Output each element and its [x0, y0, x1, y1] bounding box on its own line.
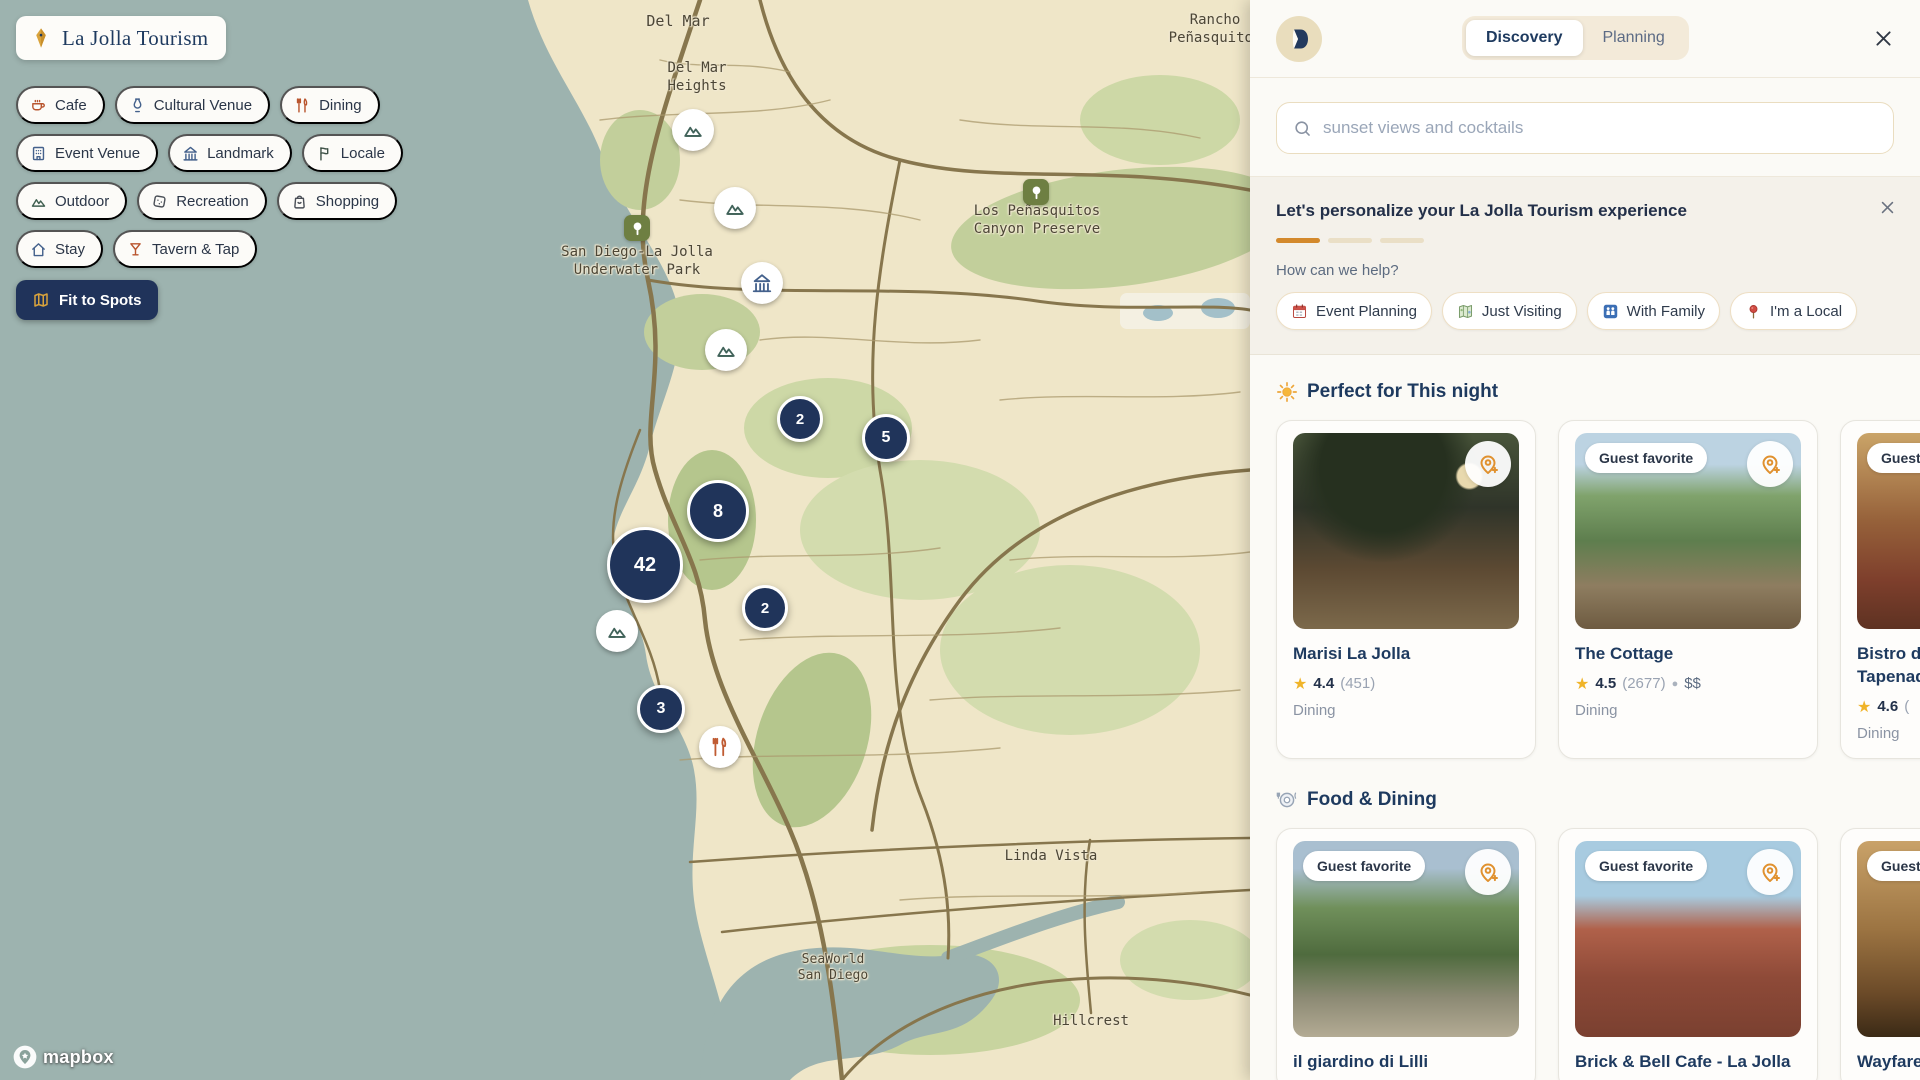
place-name: Bistro du Marché by Tapenade	[1857, 643, 1920, 689]
coffee-icon	[30, 97, 47, 114]
brand-avatar[interactable]	[1276, 16, 1322, 62]
chip-label: Cafe	[55, 97, 87, 114]
star-icon: ★	[1293, 674, 1307, 694]
section-header: Food & Dining	[1276, 789, 1920, 811]
map-cluster-marker[interactable]: 8	[687, 480, 749, 542]
review-count: (	[1904, 698, 1909, 715]
park-tree-marker	[1023, 179, 1049, 205]
building-icon	[30, 145, 47, 162]
chip-label: Stay	[55, 241, 85, 258]
review-count: (451)	[1340, 675, 1375, 692]
filter-chip-landmark[interactable]: Landmark	[168, 134, 292, 172]
rating-value: 4.5	[1595, 675, 1616, 692]
personalize-option-event-planning[interactable]: Event Planning	[1276, 292, 1432, 330]
card-row: Marisi La Jolla★4.4(451)DiningGuest favo…	[1276, 420, 1920, 759]
star-icon: ★	[1857, 697, 1871, 717]
dice-icon	[151, 193, 168, 210]
map-place-label: SeaWorld San Diego	[798, 952, 868, 985]
place-card[interactable]: Guest favoriteWayfarer	[1840, 828, 1920, 1080]
personalize-question: How can we help?	[1276, 262, 1894, 279]
personalize-close-button[interactable]	[1879, 199, 1896, 216]
personalize-banner: Let's personalize your La Jolla Tourism …	[1250, 177, 1920, 355]
place-photo: Guest favorite	[1575, 433, 1801, 629]
mountain-icon	[682, 119, 704, 141]
mapbox-wordmark: mapbox	[43, 1047, 114, 1068]
section-title: Perfect for This night	[1307, 381, 1498, 403]
place-photo: Guest favorite	[1575, 841, 1801, 1037]
review-count: (2677)	[1622, 675, 1665, 692]
museum-icon	[751, 272, 773, 294]
sidebar-tab-group: Discovery Planning	[1462, 16, 1689, 60]
map-place-label: Linda Vista	[1005, 848, 1098, 866]
map-poi-marker[interactable]	[699, 726, 741, 768]
worldmap-emoji-icon	[1457, 303, 1474, 320]
content-section: Food & DiningGuest favoriteil giardino d…	[1276, 789, 1920, 1080]
park-tree-marker	[624, 215, 650, 241]
price-level: $$	[1684, 675, 1701, 692]
personalize-option-just-visiting[interactable]: Just Visiting	[1442, 292, 1577, 330]
filter-chip-stay[interactable]: Stay	[16, 230, 103, 268]
brand-d-icon	[1287, 27, 1311, 51]
place-name: il giardino di Lilli	[1293, 1051, 1519, 1074]
sidebar-content: Perfect for This nightMarisi La Jolla★4.…	[1250, 355, 1920, 1080]
search-box	[1276, 102, 1894, 154]
filter-chip-outdoor[interactable]: Outdoor	[16, 182, 127, 220]
vase-icon	[129, 97, 146, 114]
kite-icon	[30, 27, 52, 49]
home-icon	[30, 241, 47, 258]
add-to-trip-button[interactable]	[1465, 849, 1511, 895]
flag-icon	[316, 145, 333, 162]
cluster-count: 5	[882, 429, 891, 447]
bag-icon	[291, 193, 308, 210]
landmark-icon	[182, 145, 199, 162]
star-icon: ★	[1575, 674, 1589, 694]
place-card[interactable]: Guest favoriteBistro du Marché by Tapena…	[1840, 420, 1920, 759]
map-poi-marker[interactable]	[714, 187, 756, 229]
rating-value: 4.4	[1313, 675, 1334, 692]
calendar-emoji-icon	[1291, 303, 1308, 320]
chip-label: Recreation	[176, 193, 249, 210]
cluster-count: 2	[761, 600, 769, 617]
progress-segment-empty	[1328, 238, 1372, 243]
close-icon	[1873, 28, 1894, 49]
cluster-count: 42	[634, 554, 656, 577]
option-label: With Family	[1627, 303, 1705, 320]
map-place-label: Hillcrest	[1053, 1013, 1129, 1031]
mountain-icon	[724, 197, 746, 219]
place-card[interactable]: Guest favoriteBrick & Bell Cafe - La Jol…	[1558, 828, 1818, 1080]
mountain-icon	[606, 620, 628, 642]
chip-label: Cultural Venue	[154, 97, 252, 114]
sun-emoji-icon	[1276, 381, 1298, 403]
place-photo	[1293, 433, 1519, 629]
pin-plus-icon	[1476, 452, 1500, 476]
add-to-trip-button[interactable]	[1465, 441, 1511, 487]
family-emoji-icon	[1602, 303, 1619, 320]
option-label: I'm a Local	[1770, 303, 1842, 320]
place-name: The Cottage	[1575, 643, 1801, 666]
section-header: Perfect for This night	[1276, 381, 1920, 403]
search-section	[1250, 78, 1920, 177]
pin-plus-icon	[1758, 452, 1782, 476]
rating-value: 4.6	[1877, 698, 1898, 715]
map-cluster-marker[interactable]: 3	[637, 685, 685, 733]
chip-label: Dining	[319, 97, 362, 114]
personalize-option-i-m-a-local[interactable]: I'm a Local	[1730, 292, 1857, 330]
place-name: Wayfarer	[1857, 1051, 1920, 1074]
filter-chip-event-venue[interactable]: Event Venue	[16, 134, 158, 172]
place-card[interactable]: Guest favoriteThe Cottage★4.5(2677)●$$Di…	[1558, 420, 1818, 759]
map-poi-marker[interactable]	[672, 109, 714, 151]
map-place-label: San Diego-La Jolla Underwater Park	[561, 244, 713, 279]
rating-row: ★4.5(2677)●$$	[1575, 674, 1801, 694]
tree-icon	[1028, 184, 1045, 201]
guest-favorite-badge: Guest favorite	[1867, 851, 1920, 881]
close-icon	[1879, 199, 1896, 216]
map-poi-marker[interactable]	[596, 610, 638, 652]
filter-chip-cafe[interactable]: Cafe	[16, 86, 105, 124]
mountains-icon	[30, 193, 47, 210]
progress-segment-filled	[1276, 238, 1320, 243]
guest-favorite-badge: Guest favorite	[1867, 443, 1920, 473]
cluster-count: 3	[657, 700, 666, 718]
tree-icon	[629, 220, 646, 237]
guest-favorite-badge: Guest favorite	[1585, 851, 1707, 881]
separator-dot: ●	[1672, 678, 1679, 690]
rating-row: ★4.4(451)	[1293, 674, 1519, 694]
plate-emoji-icon	[1276, 789, 1298, 811]
personalize-options: Event PlanningJust VisitingWith FamilyI'…	[1276, 292, 1894, 330]
section-title: Food & Dining	[1307, 789, 1437, 811]
filter-chip-cultural-venue[interactable]: Cultural Venue	[115, 86, 270, 124]
chip-label: Landmark	[207, 145, 274, 162]
map-canvas[interactable]: Del MarDel Mar HeightsRancho Peñasquitos…	[0, 0, 1250, 1080]
chip-label: Locale	[341, 145, 385, 162]
pin-plus-icon	[1476, 860, 1500, 884]
tab-discovery[interactable]: Discovery	[1466, 20, 1583, 56]
guest-favorite-badge: Guest favorite	[1303, 851, 1425, 881]
sidebar-close-button[interactable]	[1873, 28, 1894, 49]
filter-chip-dining[interactable]: Dining	[280, 86, 380, 124]
utensils-icon	[294, 97, 311, 114]
cluster-count: 2	[796, 411, 804, 428]
map-cluster-marker[interactable]: 2	[777, 396, 823, 442]
map-cluster-marker[interactable]: 5	[862, 414, 910, 462]
map-cluster-marker[interactable]: 42	[607, 527, 683, 603]
search-input[interactable]	[1323, 118, 1877, 138]
cluster-count: 8	[713, 501, 723, 522]
map-poi-marker[interactable]	[705, 329, 747, 371]
place-photo: Guest favorite	[1857, 433, 1920, 629]
filter-chip-recreation[interactable]: Recreation	[137, 182, 267, 220]
app-logo-pill[interactable]: La Jolla Tourism	[16, 16, 226, 60]
filter-chip-locale[interactable]: Locale	[302, 134, 403, 172]
filter-chip-shopping[interactable]: Shopping	[277, 182, 397, 220]
map-place-label: Del Mar Heights	[667, 60, 726, 95]
app-title: La Jolla Tourism	[62, 26, 208, 51]
mountain-icon	[715, 339, 737, 361]
search-icon	[1293, 119, 1312, 138]
roundpin-emoji-icon	[1745, 303, 1762, 320]
tab-planning[interactable]: Planning	[1583, 20, 1685, 56]
place-card[interactable]: Marisi La Jolla★4.4(451)Dining	[1276, 420, 1536, 759]
place-name: Brick & Bell Cafe - La Jolla	[1575, 1051, 1801, 1074]
option-label: Event Planning	[1316, 303, 1417, 320]
add-to-trip-button[interactable]	[1747, 849, 1793, 895]
map-place-label: Rancho Peñasquitos	[1169, 12, 1250, 47]
add-to-trip-button[interactable]	[1747, 441, 1793, 487]
chip-label: Outdoor	[55, 193, 109, 210]
chip-label: Tavern & Tap	[152, 241, 239, 258]
place-category: Dining	[1575, 702, 1801, 719]
personalize-title: Let's personalize your La Jolla Tourism …	[1276, 201, 1894, 221]
filter-chip-tavern-tap[interactable]: Tavern & Tap	[113, 230, 257, 268]
restaurant-icon	[709, 736, 731, 758]
map-place-label: Del Mar	[646, 12, 709, 31]
place-card[interactable]: Guest favoriteil giardino di Lilli	[1276, 828, 1536, 1080]
rating-row: ★4.6(	[1857, 697, 1920, 717]
map-cluster-marker[interactable]: 2	[742, 585, 788, 631]
map-icon	[32, 291, 50, 309]
chip-label: Shopping	[316, 193, 379, 210]
pin-plus-icon	[1758, 860, 1782, 884]
place-photo: Guest favorite	[1857, 841, 1920, 1037]
map-poi-marker[interactable]	[741, 262, 783, 304]
mapbox-attribution[interactable]: mapbox	[12, 1044, 114, 1070]
fit-to-spots-button[interactable]: Fit to Spots	[16, 280, 158, 320]
personalize-progress	[1276, 238, 1894, 243]
card-row: Guest favoriteil giardino di LilliGuest …	[1276, 828, 1920, 1080]
option-label: Just Visiting	[1482, 303, 1562, 320]
content-section: Perfect for This nightMarisi La Jolla★4.…	[1276, 381, 1920, 759]
place-photo: Guest favorite	[1293, 841, 1519, 1037]
map-filter-chips: CafeCultural VenueDiningEvent VenueLandm…	[16, 86, 408, 268]
guest-favorite-badge: Guest favorite	[1585, 443, 1707, 473]
chip-label: Event Venue	[55, 145, 140, 162]
place-category: Dining	[1293, 702, 1519, 719]
personalize-option-with-family[interactable]: With Family	[1587, 292, 1720, 330]
map-place-label: Los Peñasquitos Canyon Preserve	[974, 203, 1100, 238]
mapbox-icon	[12, 1044, 38, 1070]
place-category: Dining	[1857, 725, 1920, 742]
martini-icon	[127, 241, 144, 258]
progress-segment-empty	[1380, 238, 1424, 243]
sidebar-header: Discovery Planning	[1250, 0, 1920, 78]
discovery-sidebar: Discovery Planning Let's personalize you…	[1250, 0, 1920, 1080]
place-name: Marisi La Jolla	[1293, 643, 1519, 666]
